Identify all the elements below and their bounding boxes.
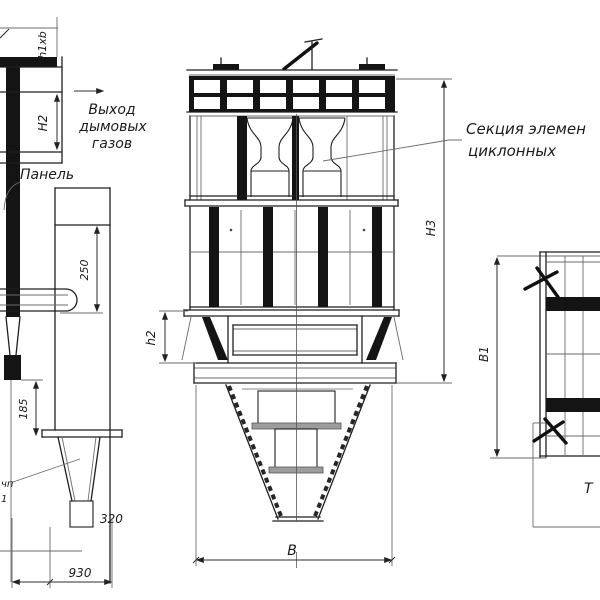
dim-n2: Н2 (36, 95, 57, 149)
dim-label-250: 250 (78, 260, 91, 281)
dim-label-h1xb: h1xb (36, 31, 49, 58)
cyclone-chamber (185, 116, 398, 206)
dim-label-n3: Н3 (424, 220, 438, 237)
front-view: h2 В Н3 (144, 39, 452, 568)
dim-label-h2: h2 (144, 330, 158, 345)
dim-930: 930 (0, 518, 112, 588)
column-discharge (4, 317, 21, 582)
gas-outlet-label-3: газов (92, 136, 132, 152)
left-edge-leader-line (13, 459, 80, 482)
right-side-view: В1 (477, 252, 600, 527)
drawing-canvas: h1xb Н2 Выход дымовых газов Панель (0, 0, 600, 600)
weld-mark-top (525, 268, 558, 297)
dim-label-930: 930 (69, 566, 92, 580)
panel-label: Панель (20, 167, 74, 183)
gas-outlet-callout: Выход дымовых газов (74, 91, 147, 152)
casing-panels (184, 207, 399, 316)
top-frame (187, 70, 397, 112)
dim-h2: h2 (144, 311, 196, 363)
outlet-flange-bar (0, 57, 57, 67)
dim-b1: В1 (477, 256, 546, 458)
cyclone-assembly-drawing: h1xb Н2 Выход дымовых газов Панель (0, 0, 600, 600)
dim-label-n2: Н2 (36, 115, 50, 132)
dim-250: 250 (60, 227, 103, 313)
cyclone-element-2 (299, 118, 345, 197)
cyclone-section-leader-line (323, 140, 462, 161)
cyclone-element-1 (247, 118, 293, 197)
dim-n3: Н3 (396, 79, 452, 383)
dim-label-b: В (287, 543, 297, 559)
discharge-box-lower (275, 429, 317, 468)
dim-h1xb: h1xb (0, 17, 58, 59)
left-edge-fragment-1: чп (1, 479, 14, 490)
roof-lugs (213, 58, 385, 70)
support-structure (182, 316, 403, 383)
dim-label-185: 185 (17, 399, 30, 420)
lifting-davit (284, 39, 322, 69)
dim-label-b1: В1 (477, 346, 491, 362)
hopper-side-view: 320 (42, 430, 123, 527)
gas-outlet-label-2: дымовых (78, 119, 147, 135)
dim-185: 185 (17, 380, 43, 435)
gas-outlet-duct (0, 57, 62, 317)
cyclone-section-callout: Секция элемен циклонных (323, 120, 586, 161)
cyclone-section-label-1: Секция элемен (466, 120, 586, 138)
cyclone-section-label-2: циклонных (468, 142, 556, 160)
side-view-fragment-label: Т (584, 481, 594, 497)
left-edge-fragment-2: 1 (1, 494, 7, 505)
left-side-view: h1xb Н2 Выход дымовых газов Панель (0, 17, 147, 588)
dim-b: В (193, 385, 395, 566)
gas-outlet-label-1: Выход (88, 102, 135, 118)
